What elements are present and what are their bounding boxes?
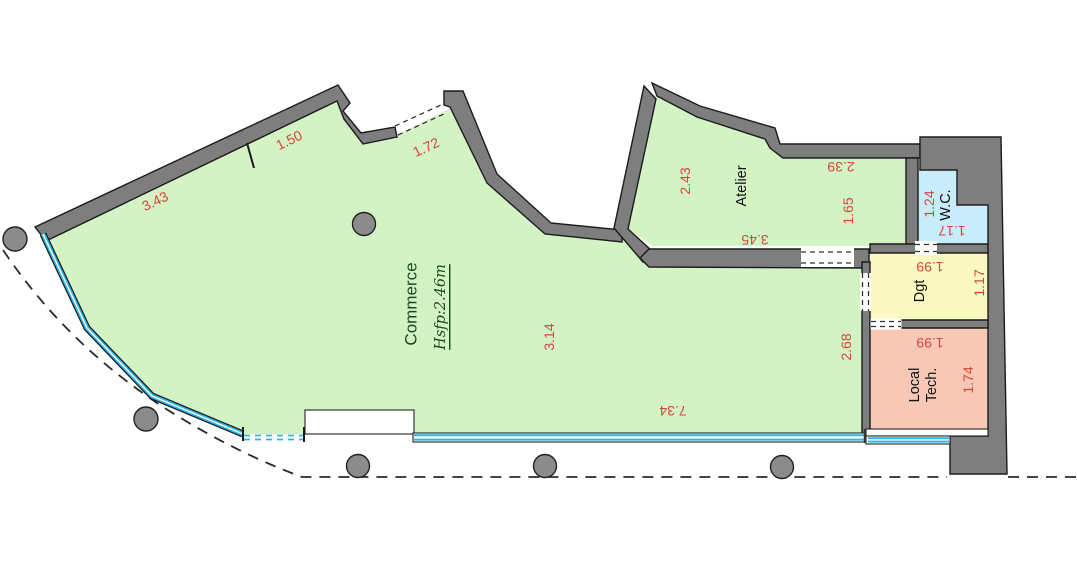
door-opening-wc — [915, 241, 937, 255]
door-opening-atelier — [801, 247, 854, 267]
dimension-localtech-1-74: 1.74 — [960, 366, 976, 393]
dimension-atelier-2-39: 2.39 — [827, 159, 854, 175]
structural-column — [3, 227, 27, 251]
structural-column — [134, 407, 158, 431]
room-label-dgt: Dgt — [912, 280, 928, 303]
floor-plan-canvas: 3.43 1.50 1.72 2.43 Atelier 2.39 1.65 3.… — [0, 0, 1077, 561]
storefront-notch — [305, 410, 414, 434]
dimension-commerce-2-68: 2.68 — [838, 333, 854, 360]
dimension-dgt-1-17: 1.17 — [971, 269, 987, 296]
door-opening-dgt — [860, 273, 871, 311]
glazed-facade-dashed — [244, 436, 309, 440]
commerce-height-note: Hsfp:2.46m — [433, 264, 449, 351]
dimension-atelier-1-65: 1.65 — [840, 197, 856, 224]
structural-column — [771, 456, 794, 479]
structural-column — [534, 455, 557, 478]
room-label-wc: W.C. — [938, 189, 954, 220]
dimension-wc-1-17: 1.17 — [938, 223, 965, 239]
structural-column — [347, 455, 370, 478]
dimension-localtech-1-99: 1.99 — [916, 335, 943, 351]
room-label-local-tech-line2: Tech. — [924, 368, 940, 403]
door-opening-localtech — [871, 319, 902, 330]
room-label-local-tech-line1: Local — [907, 368, 923, 403]
wall-atelier-right — [906, 158, 918, 248]
room-label-atelier: Atelier — [734, 165, 750, 206]
room-label-commerce: Commerce — [402, 262, 421, 345]
glazed-facade-bottom — [413, 433, 868, 442]
dimension-wc-1-24: 1.24 — [921, 190, 937, 217]
dimension-atelier-2-43: 2.43 — [677, 167, 693, 194]
room-atelier-area — [628, 93, 908, 246]
dimension-commerce-7-34: 7.34 — [659, 403, 686, 419]
dimension-commerce-3-14: 3.14 — [541, 323, 557, 350]
structural-column — [353, 213, 376, 236]
dimension-atelier-3-45: 3.45 — [741, 232, 768, 248]
dimension-dgt-1-99: 1.99 — [916, 259, 943, 275]
